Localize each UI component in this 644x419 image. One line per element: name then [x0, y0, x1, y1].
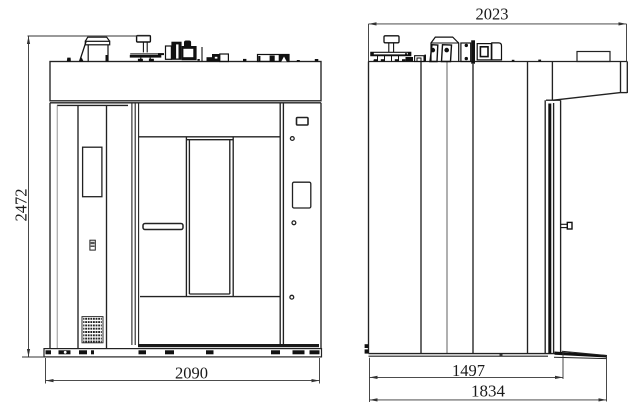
svg-text:2472: 2472	[12, 189, 31, 222]
svg-text:2023: 2023	[476, 5, 509, 24]
svg-text:1834: 1834	[471, 382, 506, 401]
svg-text:2090: 2090	[175, 363, 208, 382]
svg-text:1497: 1497	[452, 361, 485, 380]
